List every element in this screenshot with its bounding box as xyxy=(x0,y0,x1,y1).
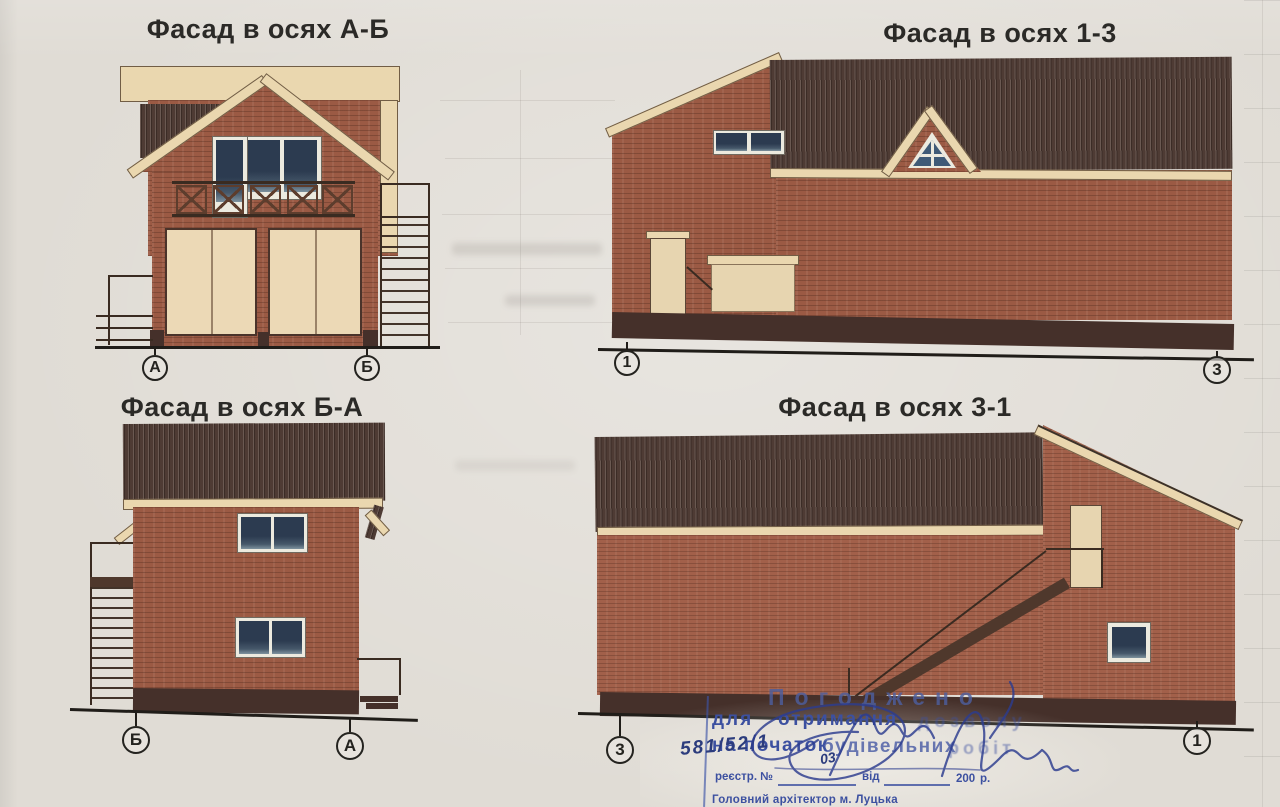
axis-marker-1b: 1 xyxy=(1183,727,1211,755)
facade-13-main-wall xyxy=(776,170,1232,320)
facade-ab-plinth-block xyxy=(150,330,164,346)
facade-ba-roof xyxy=(123,423,385,502)
facade-31-window-glass xyxy=(1112,627,1146,658)
facade-ba-right-step xyxy=(366,703,398,709)
facade-ba-lower-window-glass xyxy=(239,621,269,654)
facade-ab-railing-x-panel xyxy=(287,185,318,214)
facade-13-porch-wall xyxy=(711,264,795,312)
facade-ab-garage-door-left xyxy=(165,228,257,336)
facade-31-platform-rail xyxy=(1046,548,1104,550)
facade-ab-balcony-rail-bottom xyxy=(172,214,355,217)
signature-scribbles xyxy=(680,678,1120,807)
facade-ba-stair-stringer xyxy=(90,577,133,587)
axis-marker-3b: 3 xyxy=(606,736,634,764)
facade-ba-right-step xyxy=(360,696,398,702)
facade-ab-ground-line xyxy=(95,346,440,349)
facade-ab-left-step xyxy=(96,327,153,329)
facade-ba-stair-rail xyxy=(90,542,133,544)
facade-ab-stair-treads xyxy=(382,224,428,342)
axis-tick xyxy=(349,717,351,732)
approval-stamp: Погоджено для отримання дозволу на почат… xyxy=(680,678,1120,807)
facade-ab-plinth-block xyxy=(258,332,269,346)
facade-ba-right-step-post xyxy=(399,658,401,695)
bleed-line xyxy=(1262,0,1263,807)
axis-marker-b: Б xyxy=(354,355,380,381)
facade-13-title: Фасад в осях 1-3 xyxy=(850,18,1150,49)
facade-ab-plinth-block xyxy=(363,330,378,346)
axis-tick xyxy=(135,711,137,726)
bleed-line xyxy=(445,158,615,159)
bleed-text-blob xyxy=(452,243,602,255)
axis-marker-1: 1 xyxy=(614,350,640,376)
bleed-line xyxy=(445,268,613,269)
bleed-text-blob xyxy=(505,295,595,306)
facade-ab-stair-post xyxy=(428,183,430,346)
facade-ab-left-step-rail xyxy=(108,275,153,277)
facade-ab-railing-x-panel xyxy=(322,185,353,214)
scanned-drawing-page: Фасад в осях А-Б А Б Фасад в осях 1-3 xyxy=(0,0,1280,807)
garage-door-seam xyxy=(315,230,317,334)
facade-ba-upper-window-glass xyxy=(241,517,271,549)
facade-ab-railing-x-panel xyxy=(176,185,207,214)
facade-31-roof xyxy=(595,432,1044,532)
bleed-line xyxy=(440,100,615,101)
facade-13-main-roof xyxy=(770,57,1233,172)
facade-ab-left-step-post xyxy=(108,275,110,345)
facade-ba-stair-treads xyxy=(90,587,133,707)
axis-marker-3: 3 xyxy=(1203,356,1231,384)
facade-ab-stair-rail xyxy=(380,216,430,218)
facade-13-door xyxy=(650,238,686,318)
axis-marker-a: А xyxy=(142,355,168,381)
garage-door-seam xyxy=(211,230,213,334)
facade-ba-upper-window-glass xyxy=(274,517,304,549)
axis-tick xyxy=(619,714,621,736)
bleed-text-blob xyxy=(455,460,575,471)
bleed-line xyxy=(442,214,617,215)
facade-ab-railing-x-panel xyxy=(250,185,281,214)
facade-ba-lower-window-glass xyxy=(272,621,302,654)
facade-ab-left-step xyxy=(96,339,153,341)
facade-31-upper-door xyxy=(1070,505,1102,588)
facade-13-ribbon-window-glass xyxy=(751,133,781,151)
facade-31-main-wall xyxy=(597,535,1043,695)
axis-marker-a2: А xyxy=(336,732,364,760)
axis-tick xyxy=(626,342,628,350)
facade-31-platform-post xyxy=(1101,548,1103,588)
facade-ba-title: Фасад в осях Б-А xyxy=(92,392,392,423)
facade-13-ground-line xyxy=(598,348,1254,361)
facade-ab-left-step xyxy=(96,315,153,317)
facade-ab-railing-x-panel xyxy=(213,185,244,214)
facade-31-title: Фасад в осях 3-1 xyxy=(745,392,1045,423)
facade-ab-stair-rail xyxy=(380,183,430,185)
facade-ab-garage-door-right xyxy=(268,228,362,336)
bleed-line xyxy=(448,322,613,323)
facade-ab-balcony-rail-top xyxy=(172,181,355,184)
facade-ab-title: Фасад в осях А-Б xyxy=(118,14,418,45)
facade-ba-right-step-rail xyxy=(357,658,401,660)
facade-13-ribbon-window-glass xyxy=(716,133,747,151)
axis-marker-b2: Б xyxy=(122,726,150,754)
